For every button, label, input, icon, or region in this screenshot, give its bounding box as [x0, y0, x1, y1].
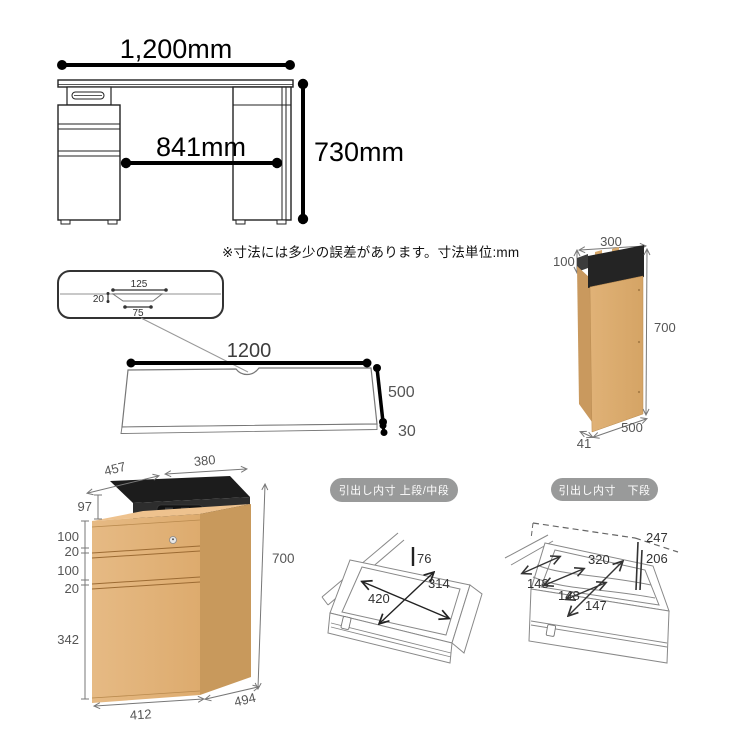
panel-top-width-label: 300 [600, 234, 622, 249]
desktop-top-view-drawing: 125 20 75 1200 500 30 [40, 262, 432, 444]
panel-height-label: 700 [654, 320, 676, 335]
cabinet-front-face [92, 514, 200, 703]
desk-width-label: 1,200mm [120, 34, 233, 64]
drawer2-height-label: 100 [57, 563, 79, 578]
lower-drawer-badge: 引出し内寸 下段 [551, 478, 658, 501]
panel-left-face [577, 266, 592, 422]
panel-depth-label: 500 [621, 420, 643, 435]
dim-dot [107, 300, 110, 303]
desktop-plan-fill [122, 368, 377, 427]
panel-front-face [590, 276, 643, 432]
gap1-label: 20 [65, 544, 79, 559]
height-to-top-label: 247 [646, 530, 668, 545]
upper-drawer-drawing: 76 314 420 [318, 513, 518, 675]
upper-drawer-badge: 引出し内寸 上段/中段 [330, 478, 458, 502]
cabinet-width-label: 412 [129, 706, 152, 722]
lower-drawer-drawing: 247 206 320 148 148 147 [503, 503, 695, 688]
lower-drawer-badge-label: 引出し内寸 下段 [559, 482, 651, 498]
plan-depth-label: 500 [388, 384, 415, 401]
dim-dot [149, 305, 153, 309]
dim-dot [298, 214, 308, 224]
dim-dot [107, 292, 110, 295]
slide-lock-detail [546, 624, 556, 636]
section3-label: 147 [585, 598, 607, 613]
inner-depth-label: 314 [428, 576, 450, 591]
dimension-sheet: 1,200mm 841mm 730mm ※寸法には多少の誤差があります。寸法 [0, 0, 740, 740]
plan-thickness-label: 30 [398, 423, 416, 440]
drawer1-height-label: 100 [57, 529, 79, 544]
dim-dot [272, 158, 282, 168]
dim-dot [111, 288, 115, 292]
cabinet-depth-label: 494 [233, 690, 258, 709]
cabinet-edge [322, 597, 328, 605]
inner-width-label: 420 [368, 591, 390, 606]
notch-top-width-label: 125 [131, 279, 148, 290]
desk-front-drawing: 1,200mm 841mm 730mm [25, 28, 417, 232]
inner-width-label: 320 [588, 552, 610, 567]
cabinet-side-face [200, 504, 251, 695]
dim-dot [381, 429, 388, 436]
tray-height-label: 97 [78, 499, 92, 514]
notch-bottom-width-label: 75 [132, 308, 144, 319]
desk-top [58, 80, 293, 87]
screw-hole [638, 391, 640, 393]
panel-thickness-label: 41 [577, 436, 591, 451]
panel-height-dim-line [646, 250, 647, 414]
desk-height-label: 730mm [314, 137, 404, 167]
notch-depth-label: 20 [93, 294, 105, 305]
dim-dot [380, 422, 387, 429]
foot [236, 220, 245, 224]
tolerance-note: ※寸法には多少の誤差があります。寸法単位:mm [222, 241, 519, 261]
plan-depth-dim [377, 368, 383, 422]
dashed-drop-line [531, 523, 533, 539]
drawer3-height-label: 342 [57, 632, 79, 647]
dim-dot [127, 359, 136, 368]
dim-dot [373, 364, 381, 372]
dim-dot [57, 60, 67, 70]
top-width-label: 380 [193, 453, 216, 469]
top-depth-label: 457 [103, 459, 128, 479]
dim-dot [164, 288, 168, 292]
foot [108, 220, 117, 224]
dim-dot [121, 158, 131, 168]
section1-label: 148 [527, 576, 549, 591]
dim-dot [285, 60, 295, 70]
gap2-label: 20 [65, 581, 79, 596]
cabinet-drawing: 97 100 20 100 20 342 457 380 700 412 494 [45, 453, 309, 731]
plan-width-label: 1200 [227, 340, 272, 362]
cabinet-height-label: 700 [272, 551, 295, 566]
panel-black-height-label: 100 [553, 254, 575, 269]
left-pedestal [58, 105, 120, 220]
screw-hole [638, 341, 640, 343]
keyhole [172, 538, 174, 540]
foot [61, 220, 70, 224]
dim-dot [123, 305, 127, 309]
inner-height-label: 206 [646, 551, 668, 566]
dim-dot [363, 359, 372, 368]
desk-inner-width-label: 841mm [156, 132, 246, 162]
foot [277, 220, 286, 224]
side-panel-drawing: 300 100 700 500 41 [550, 226, 698, 458]
upper-drawer-badge-label: 引出し内寸 上段/中段 [339, 482, 450, 498]
cabinet-height-dim [258, 485, 265, 688]
inner-height-label: 76 [417, 551, 431, 566]
screw-hole [638, 289, 640, 291]
dashed-top-line [533, 523, 635, 538]
top-width-dim [166, 469, 246, 474]
dim-dot [298, 79, 308, 89]
